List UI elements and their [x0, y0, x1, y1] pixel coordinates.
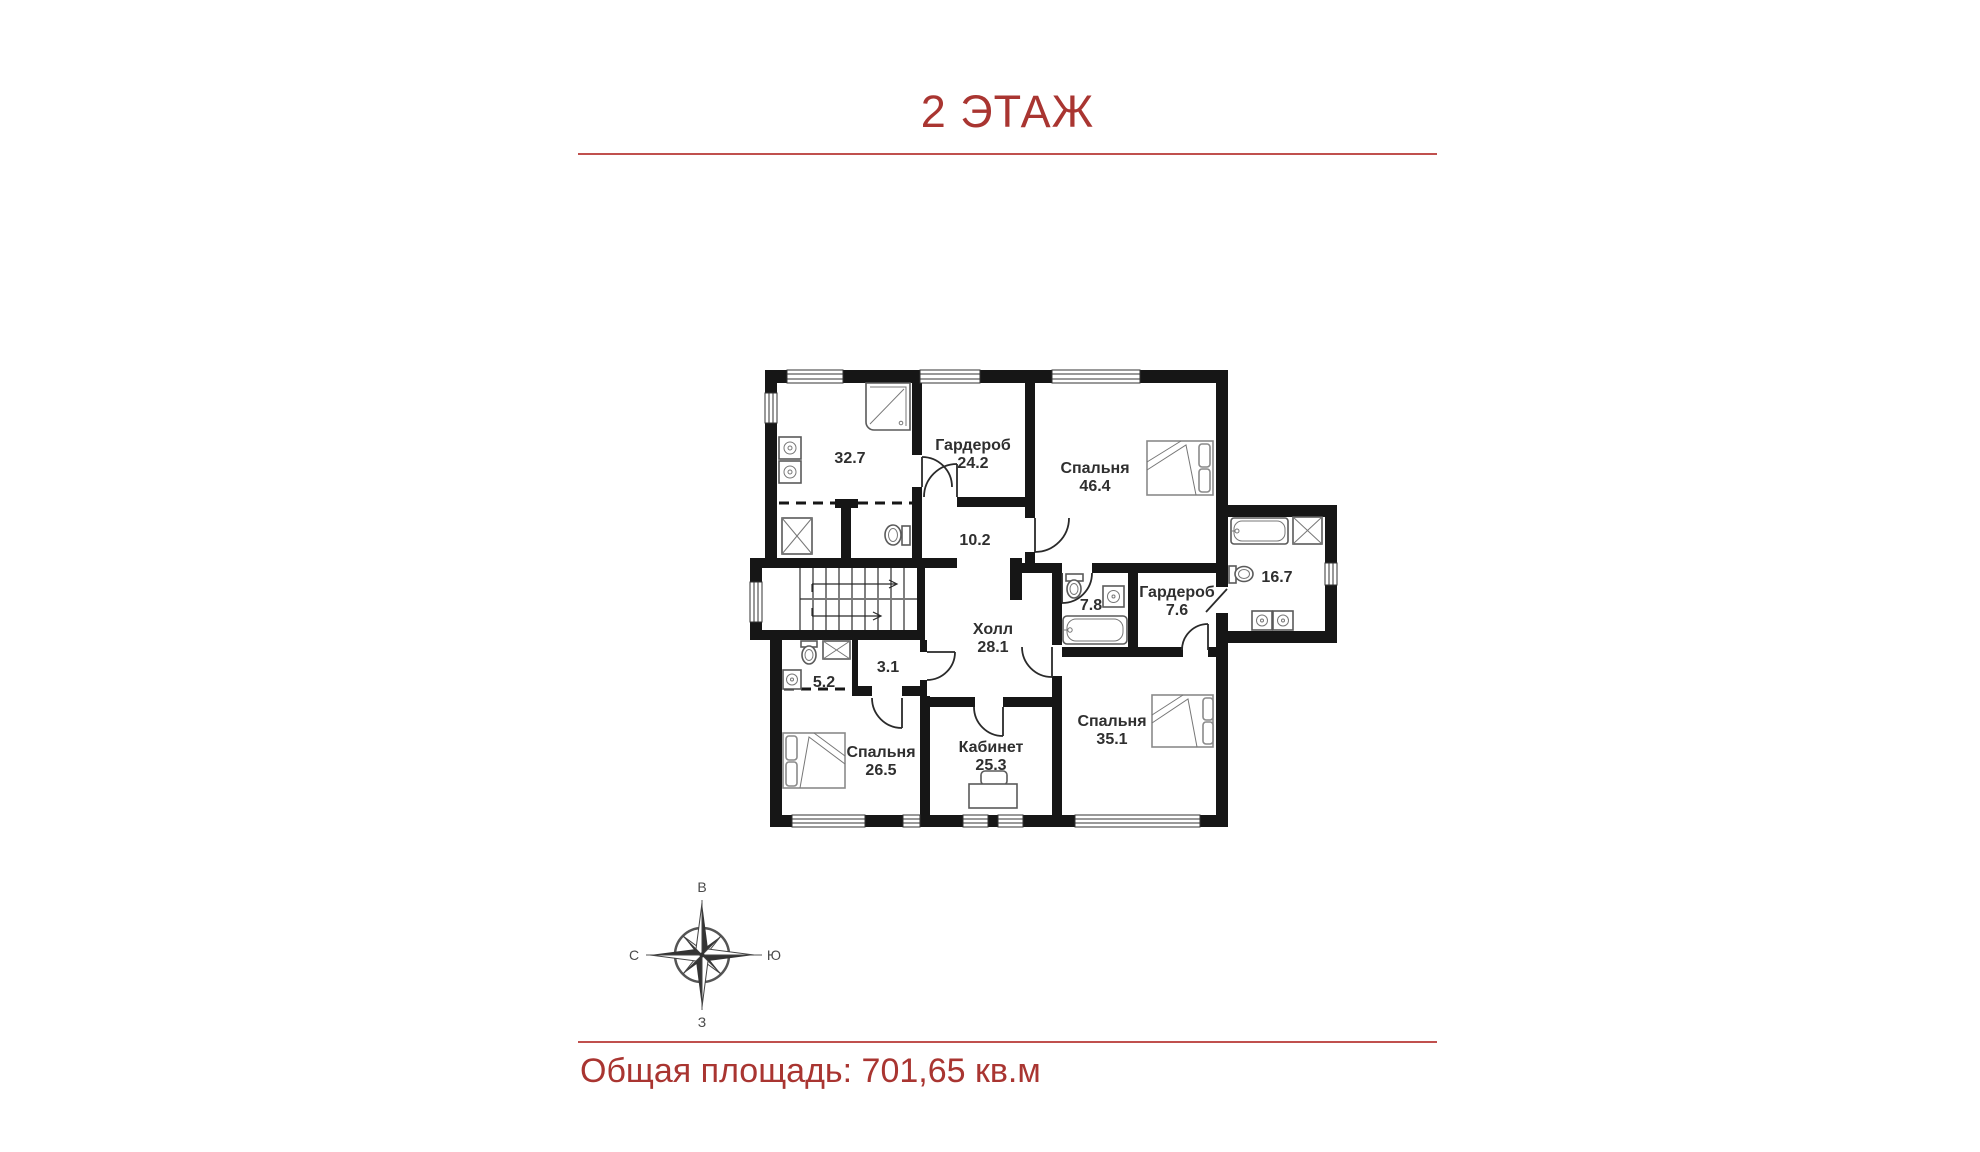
toilet-icon [1229, 566, 1253, 583]
total-area-text: Общая площадь: 701,65 кв.м [580, 1052, 1041, 1091]
bed-icon [783, 733, 845, 788]
compass-label-east: В [697, 879, 706, 895]
shower-tray-icon [1293, 517, 1322, 544]
washing-machine-icon [779, 437, 801, 483]
room-label-bedroom-26-5-name: Спальня [846, 744, 915, 761]
room-label-storage-3-1: 3.1 [877, 659, 899, 676]
room-label-bedroom-35-1-area: 35.1 [1096, 731, 1127, 748]
toilet-icon [885, 525, 910, 545]
floor-plan: 32.7 Гардероб 24.2 Спальня 46.4 10.2 Хол… [740, 360, 1360, 840]
room-label-wardrobe-7-6-area: 7.6 [1166, 602, 1188, 619]
window [920, 370, 980, 383]
window [1052, 370, 1140, 383]
room-label-hall-area: 28.1 [977, 639, 1008, 656]
desk-icon [969, 771, 1017, 808]
compass-label-west: З [698, 1014, 706, 1030]
double-sink-icon [1252, 611, 1293, 630]
room-label-bathroom-5-2: 5.2 [813, 674, 835, 691]
total-area-label: Общая площадь: [580, 1052, 852, 1090]
room-label-bedroom-46-4-name: Спальня [1060, 460, 1129, 477]
window [998, 815, 1023, 827]
shower-tray-icon [782, 518, 812, 554]
stairs-direction-arrow [812, 580, 897, 620]
compass-rose: В Ю С З [626, 878, 786, 1033]
toilet-icon [801, 641, 817, 664]
room-label-wardrobe-24-2-area: 24.2 [957, 455, 988, 472]
room-label-bedroom-26-5-area: 26.5 [865, 762, 896, 779]
room-label-wardrobe-24-2-name: Гардероб [935, 437, 1011, 454]
compass-label-south: Ю [767, 947, 781, 963]
page-title: 2 ЭТАЖ [578, 86, 1437, 138]
slide-page: 2 ЭТАЖ Общая площадь: 701,65 кв.м [0, 0, 1980, 1152]
room-label-office-25-3-area: 25.3 [975, 757, 1006, 774]
door-arc [872, 698, 902, 728]
room-label-bedroom-35-1-name: Спальня [1077, 713, 1146, 730]
door-arc [1182, 624, 1208, 650]
shower-tray-icon [823, 641, 850, 659]
window [1325, 563, 1337, 585]
door-arc [974, 707, 1003, 736]
washing-machine-icon [783, 670, 801, 689]
footer-overline [578, 1041, 1437, 1043]
window [1075, 815, 1200, 827]
compass-star [650, 903, 754, 1007]
bed-icon [1147, 441, 1213, 495]
room-label-bathroom-16-7: 16.7 [1261, 569, 1292, 586]
bathtub-icon [1231, 518, 1288, 544]
room-label-hall-name: Холл [973, 621, 1013, 638]
room-label-corridor-10-2: 10.2 [959, 532, 990, 549]
title-underline [578, 153, 1437, 155]
window [750, 582, 762, 622]
room-label-office-25-3-name: Кабинет [959, 739, 1024, 756]
window [903, 815, 920, 827]
window [787, 370, 843, 383]
door-arc [927, 652, 955, 680]
window [963, 815, 988, 827]
window [765, 393, 777, 423]
room-label-bathroom-32-7: 32.7 [834, 450, 865, 467]
toilet-icon [1066, 574, 1083, 598]
door-arc [1022, 647, 1052, 677]
compass-label-north: С [629, 947, 639, 963]
room-label-bedroom-46-4-area: 46.4 [1079, 478, 1110, 495]
sink-icon [1103, 586, 1124, 607]
stairs [800, 568, 917, 630]
bed-icon [1152, 695, 1213, 747]
shower-cabin-icon [866, 383, 910, 430]
window [792, 815, 865, 827]
room-label-bathroom-7-8: 7.8 [1080, 597, 1102, 614]
bathtub-icon [1063, 616, 1127, 644]
total-area-value: 701,65 кв.м [862, 1052, 1041, 1090]
door-arc [1035, 518, 1069, 552]
room-label-wardrobe-7-6-name: Гардероб [1139, 584, 1215, 601]
